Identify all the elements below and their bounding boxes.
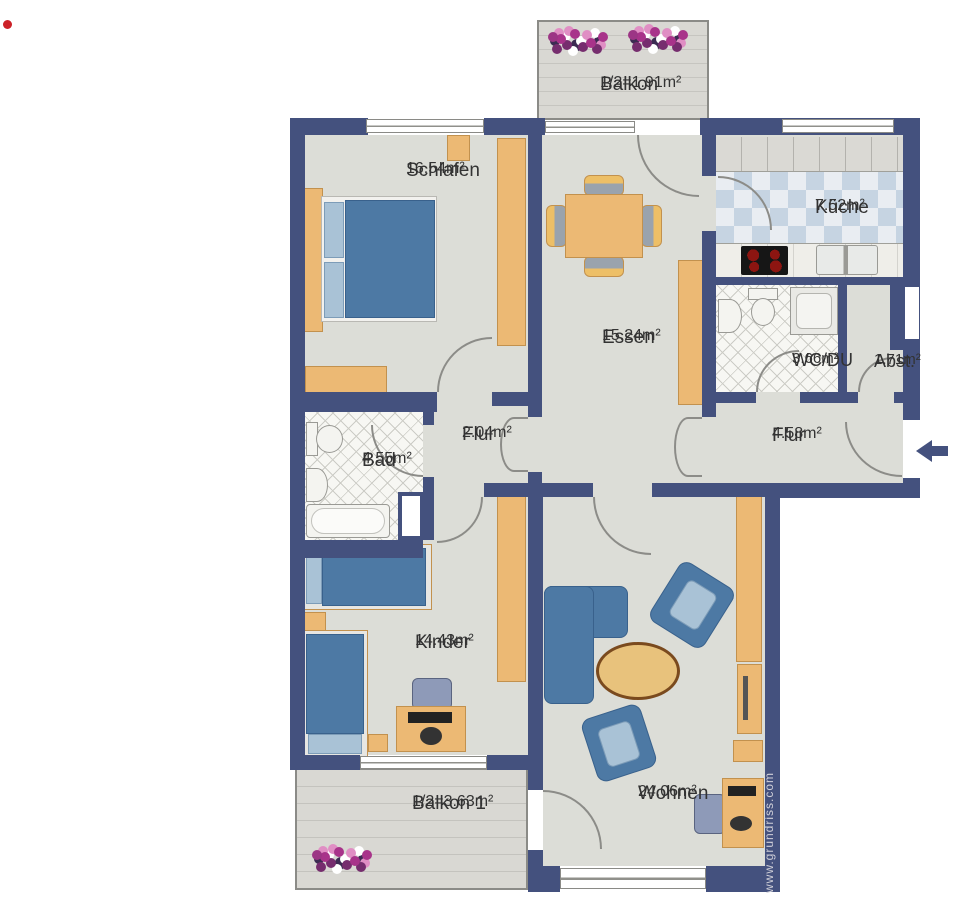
wall-segment — [305, 392, 437, 412]
dining-table-icon — [565, 194, 643, 258]
flower-pot-icon — [628, 30, 638, 40]
door-swing-arc — [674, 417, 702, 477]
bathtub-icon — [311, 508, 385, 534]
pillow-icon — [306, 550, 322, 604]
wall-segment — [528, 395, 542, 417]
wall-segment — [484, 118, 545, 135]
headboard-icon — [303, 188, 323, 332]
wall-segment — [652, 483, 765, 497]
watermark: www.grundriss.com — [762, 772, 776, 893]
cooktop-icon — [741, 246, 788, 275]
wall-segment — [528, 135, 542, 395]
washbasin-icon — [718, 299, 742, 333]
duct-shaft — [398, 492, 424, 540]
wardrobe-icon — [497, 490, 526, 682]
pillow-icon — [324, 202, 344, 258]
wardrobe-icon — [497, 138, 526, 346]
desk-items — [420, 727, 442, 745]
wall-segment — [290, 540, 423, 558]
wardrobe-icon — [736, 490, 762, 662]
shower-icon — [796, 293, 832, 329]
wall-segment — [716, 392, 756, 403]
sideboard-icon — [305, 366, 387, 394]
chair-icon — [546, 205, 567, 247]
wall-segment — [492, 392, 528, 406]
desk-items — [728, 786, 756, 796]
kitchen-counter — [716, 137, 903, 172]
balcony-top-deck — [537, 20, 709, 120]
chair-icon — [641, 205, 662, 247]
window — [545, 121, 635, 133]
washbasin-icon — [306, 468, 328, 502]
wall-segment — [702, 231, 716, 283]
wall-segment — [290, 118, 305, 770]
wall-segment — [423, 392, 434, 425]
wall-segment — [290, 755, 360, 770]
wall-segment — [423, 477, 434, 540]
window — [366, 119, 484, 133]
pillow-icon — [308, 734, 362, 754]
wall-segment — [528, 483, 543, 790]
flower-pot-icon — [548, 32, 558, 42]
kitchen-sink-icon — [816, 245, 878, 275]
window — [360, 756, 487, 769]
wall-segment — [528, 866, 560, 892]
window — [560, 868, 706, 889]
floor-plan: Schlafen 16.54m² Essen 15.24m² Küche 7.5… — [0, 0, 960, 902]
toilet-icon — [316, 425, 343, 453]
wall-segment — [765, 483, 920, 498]
nightstand-icon — [304, 612, 326, 632]
balcony-bottom-deck — [295, 768, 528, 890]
window — [905, 287, 919, 339]
wall-segment — [838, 285, 847, 392]
entrance-arrow-icon — [932, 446, 948, 456]
single-bed-icon — [306, 634, 364, 734]
sideboard-icon — [678, 260, 703, 405]
desk-items — [408, 712, 452, 723]
wall-segment — [903, 118, 920, 420]
wall-segment — [702, 277, 905, 285]
shelf-icon — [733, 740, 763, 762]
sofa-icon — [544, 586, 594, 704]
chair-icon — [584, 175, 624, 196]
wall-segment — [894, 392, 903, 403]
coffee-table-icon — [596, 642, 680, 700]
red-marker-dot — [3, 20, 12, 29]
double-bed-icon — [345, 200, 435, 318]
wall-segment — [702, 135, 716, 176]
tv-board-icon — [737, 664, 762, 734]
flower-pot-icon — [312, 850, 322, 860]
entrance-arrow-icon — [916, 440, 932, 462]
wall-segment — [800, 392, 858, 403]
nightstand-icon — [368, 734, 388, 752]
wall-segment — [528, 472, 542, 483]
wall-segment — [487, 755, 540, 770]
shelf-icon — [447, 135, 470, 161]
wall-segment — [702, 283, 716, 417]
pillow-icon — [324, 262, 344, 318]
chair-icon — [584, 256, 624, 277]
wall-segment — [890, 283, 903, 350]
wall-segment — [543, 483, 593, 497]
desk-items — [730, 816, 752, 831]
window — [782, 119, 894, 133]
tv-icon — [743, 676, 748, 720]
toilet-icon — [751, 298, 775, 326]
